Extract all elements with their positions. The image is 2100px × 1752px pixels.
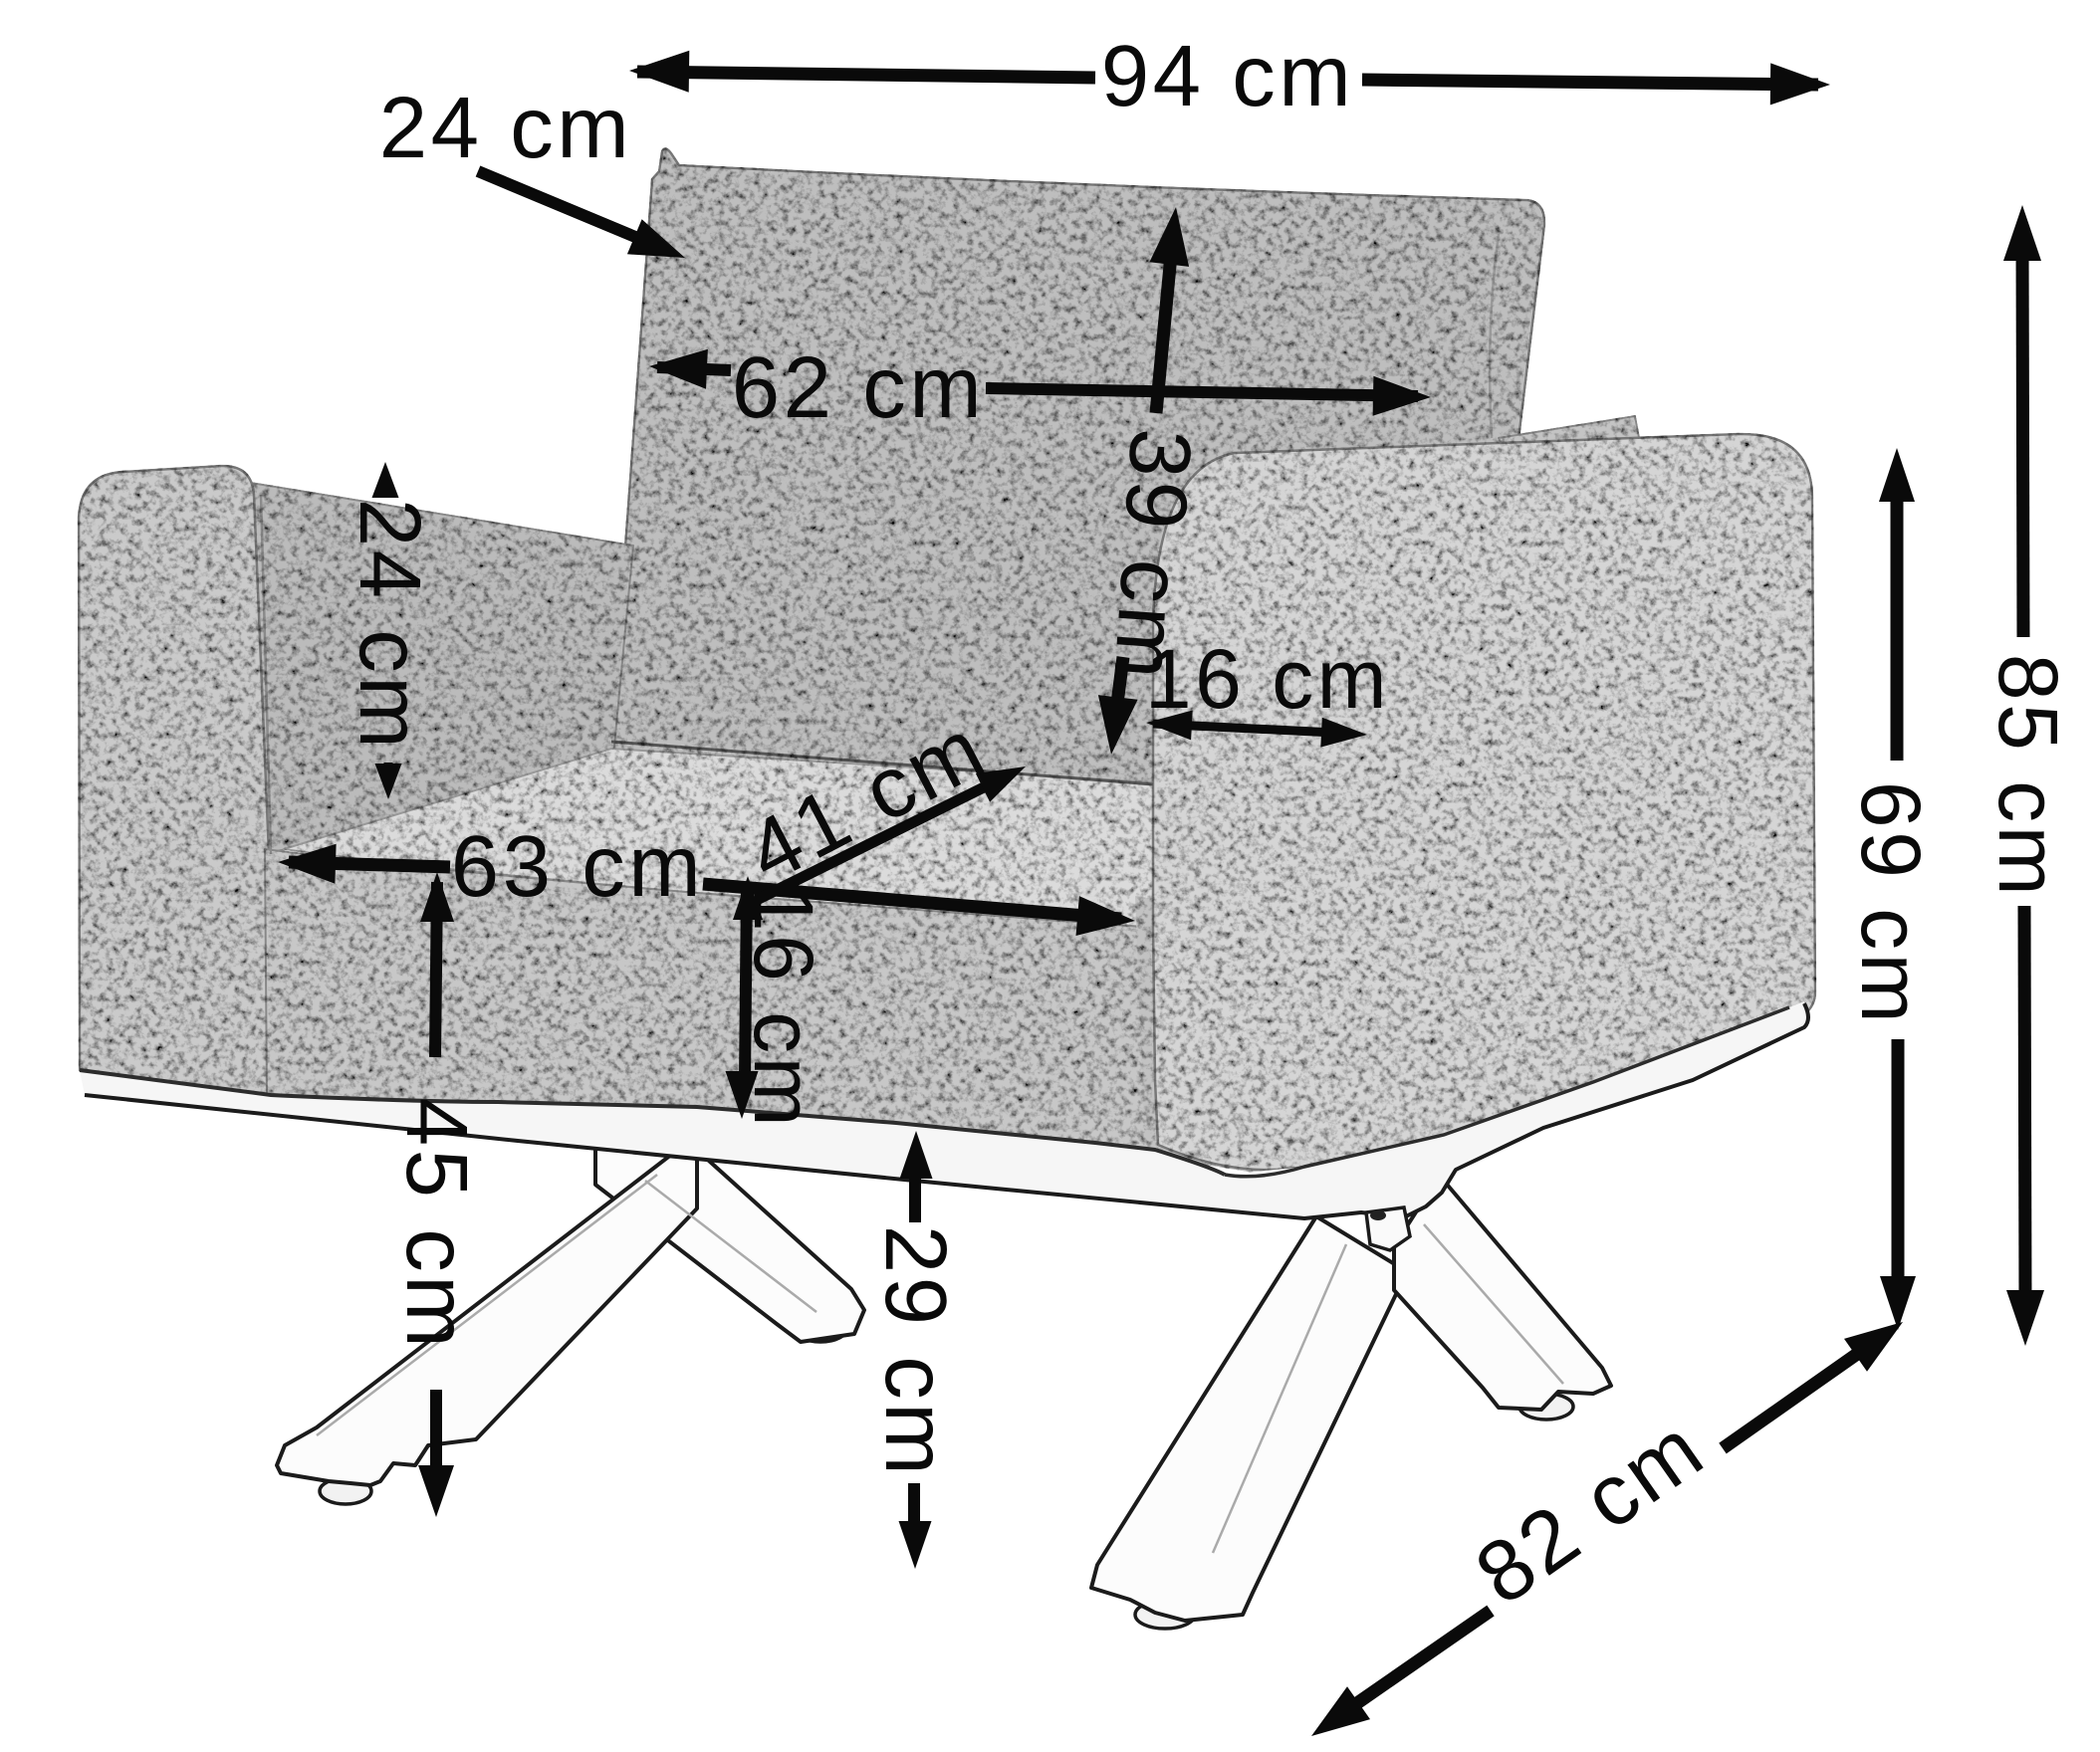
- svg-text:45 cm: 45 cm: [388, 1098, 485, 1351]
- svg-text:63 cm: 63 cm: [451, 818, 704, 915]
- svg-text:62 cm: 62 cm: [732, 339, 985, 436]
- svg-text:69 cm: 69 cm: [1844, 781, 1938, 1026]
- svg-text:85 cm: 85 cm: [1982, 654, 2075, 899]
- svg-text:94 cm: 94 cm: [1101, 28, 1354, 124]
- svg-text:24 cm: 24 cm: [379, 80, 632, 176]
- svg-text:16 cm: 16 cm: [1145, 632, 1390, 726]
- svg-text:24 cm: 24 cm: [342, 499, 438, 752]
- svg-text:29 cm: 29 cm: [867, 1225, 964, 1478]
- svg-text:16 cm: 16 cm: [737, 885, 830, 1130]
